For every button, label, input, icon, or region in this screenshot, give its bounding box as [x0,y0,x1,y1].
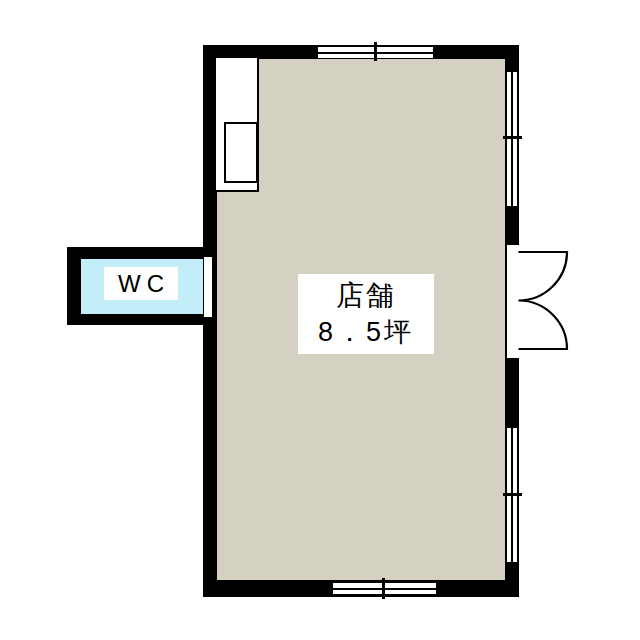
window-center-tick [503,136,522,139]
double-swing-door-icon [506,243,576,359]
window-right-upper-icon [507,72,517,206]
wc-door-opening [204,257,212,317]
sink-icon [224,122,258,183]
counter-with-sink-icon [214,56,259,192]
window-pane-line [511,72,513,206]
shop-room-name: 店舗 [336,278,396,314]
window-center-tick [503,493,522,496]
shop-room-area: 8．5坪 [318,314,414,350]
shop-room-label: 店舗 8．5坪 [298,274,434,354]
window-center-tick [382,578,385,599]
window-center-tick [374,42,377,61]
wc-room-label: WC [104,267,178,300]
wc-room-label-text: WC [112,270,170,298]
